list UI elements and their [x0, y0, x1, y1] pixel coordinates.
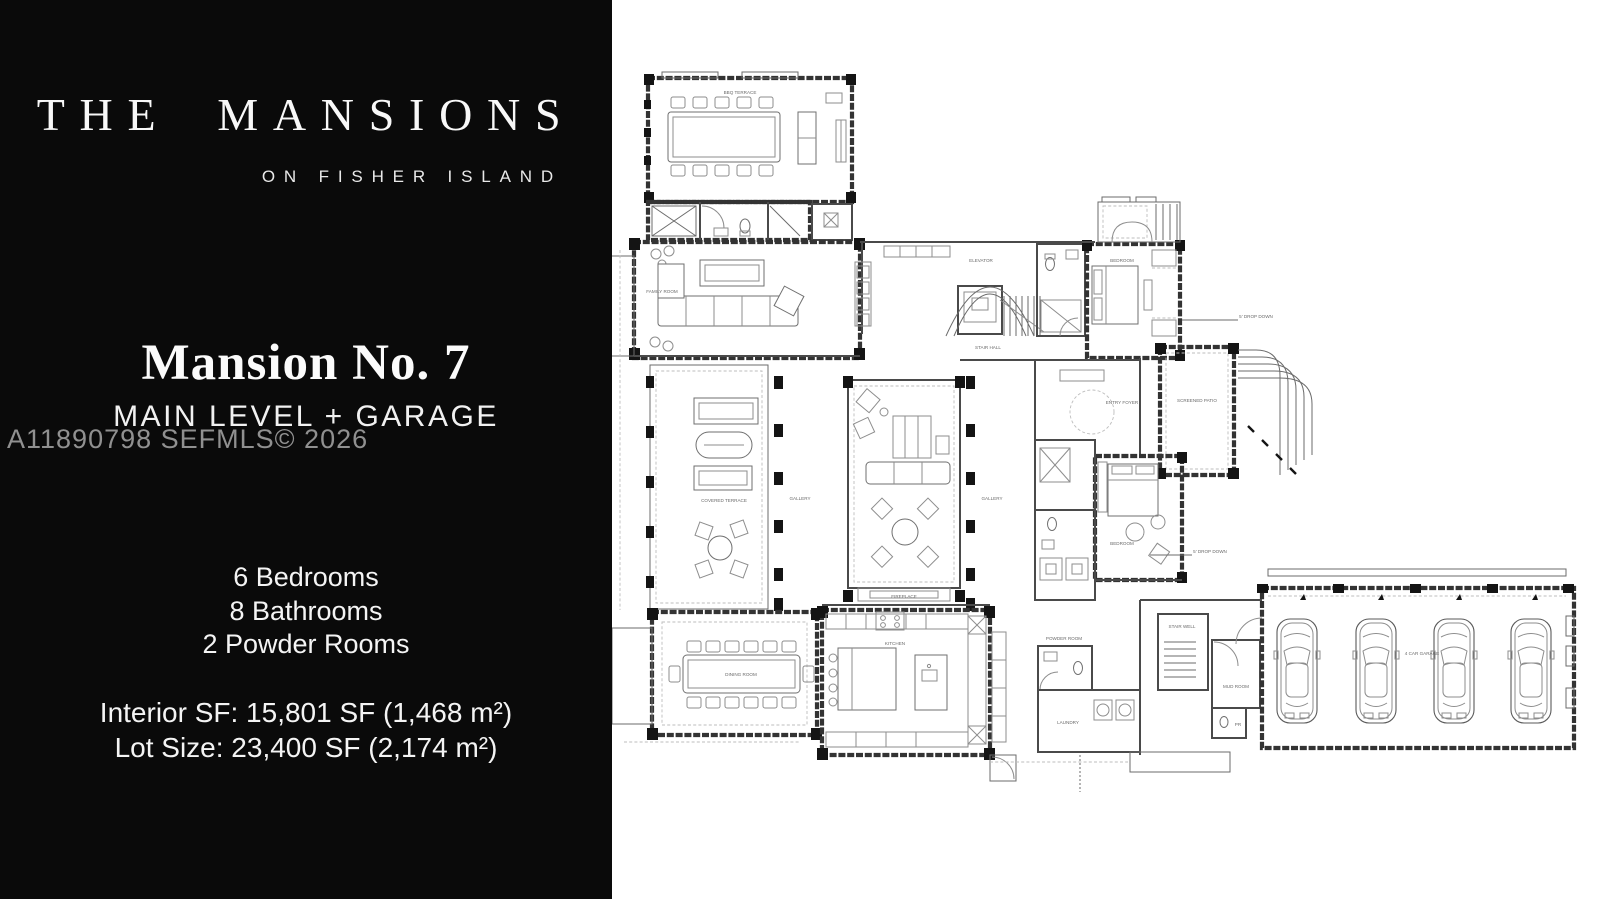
room-kitchen: KITCHEN	[817, 606, 995, 760]
zone-bar-elevator-stair: ELEVATOR STAIR HALL	[855, 242, 1044, 350]
driveway-band	[1268, 569, 1566, 576]
level-subtitle: MAIN LEVEL + GARAGE	[0, 400, 612, 434]
label-stair-well: STAIR WELL	[1169, 624, 1196, 629]
bbq-dining-table	[668, 97, 780, 176]
room-bbq-terrace: BBQ TERRACE	[644, 72, 856, 203]
room-family: FAMILY ROOM	[610, 238, 865, 360]
garage-cars	[1274, 619, 1554, 723]
label-mud-room: MUD ROOM	[1223, 684, 1249, 689]
mansion-title: Mansion No. 7	[0, 334, 612, 392]
label-elevator: ELEVATOR	[969, 258, 993, 263]
zone-inner-baths	[1035, 440, 1095, 600]
label-gallery-left: GALLERY	[789, 496, 810, 501]
room-covered-terrace: COVERED TERRACE	[646, 365, 768, 609]
annotation-drop-down-2: 5' DROP DOWN	[1193, 549, 1227, 554]
bed-top	[1092, 266, 1138, 324]
label-family-room: FAMILY ROOM	[646, 289, 678, 294]
label-screened-patio: SCREENED PATIO	[1177, 398, 1217, 403]
stat-bedrooms: 6 Bedrooms	[0, 561, 612, 595]
label-covered-terrace: COVERED TERRACE	[701, 498, 747, 503]
label-kitchen: KITCHEN	[885, 641, 905, 646]
brand-name: THE MANSIONS	[0, 88, 612, 141]
zone-garage-entry: STAIR WELL MUD ROOM PR	[990, 614, 1260, 781]
entry-stoop	[1098, 197, 1180, 242]
title-block: Mansion No. 7 MAIN LEVEL + GARAGE	[0, 334, 612, 434]
label-stair-hall: STAIR HALL	[975, 345, 1001, 350]
room-stats: 6 Bedrooms 8 Bathrooms 2 Powder Rooms	[0, 561, 612, 662]
gallery-left: GALLERY	[774, 376, 811, 611]
interior-sf: Interior SF: 15,801 SF (1,468 m²)	[0, 695, 612, 730]
terrace-steps	[1238, 350, 1312, 475]
label-pr: PR	[1235, 722, 1242, 727]
label-dining-room: DINING ROOM	[725, 672, 757, 677]
gallery-right: GALLERY	[966, 376, 1003, 611]
annotation-drop-down-1: 5' DROP DOWN	[1239, 314, 1273, 319]
brand-tagline: ON FISHER ISLAND	[0, 167, 612, 187]
room-great: FIREPLACE	[843, 376, 965, 602]
stat-powder-rooms: 2 Powder Rooms	[0, 628, 612, 662]
label-gallery-right: GALLERY	[981, 496, 1002, 501]
label-entry-foyer: ENTRY FOYER	[1106, 400, 1139, 405]
zone-service: POWDER ROOM LAUNDRY	[992, 600, 1140, 755]
stat-bathrooms: 8 Bathrooms	[0, 595, 612, 629]
label-garage: 4 CAR GARAGE	[1405, 651, 1439, 656]
label-powder-room: POWDER ROOM	[1046, 636, 1082, 641]
room-dining: DINING ROOM	[612, 608, 822, 740]
room-garage: 4 CAR GARAGE	[1236, 569, 1574, 748]
bed-lower	[1108, 464, 1158, 516]
strip-cabana-bath	[648, 202, 852, 240]
label-bedroom-top: BEDROOM	[1110, 258, 1134, 263]
lot-size: Lot Size: 23,400 SF (2,174 m²)	[0, 730, 612, 765]
flyer-page: BBQ TERRACE	[0, 0, 1600, 899]
room-bedroom-top: BEDROOM 5' DROP DOWN	[1082, 240, 1273, 361]
size-stats: Interior SF: 15,801 SF (1,468 m²) Lot Si…	[0, 695, 612, 765]
branding-panel: THE MANSIONS ON FISHER ISLAND Mansion No…	[0, 0, 612, 899]
brand-block: THE MANSIONS ON FISHER ISLAND	[0, 88, 612, 187]
room-bath-top	[1037, 244, 1085, 336]
label-laundry: LAUNDRY	[1057, 720, 1079, 725]
label-bbq-terrace: BBQ TERRACE	[724, 90, 757, 95]
label-fireplace: FIREPLACE	[891, 594, 917, 599]
label-bedroom-lower: BEDROOM	[1110, 541, 1134, 546]
